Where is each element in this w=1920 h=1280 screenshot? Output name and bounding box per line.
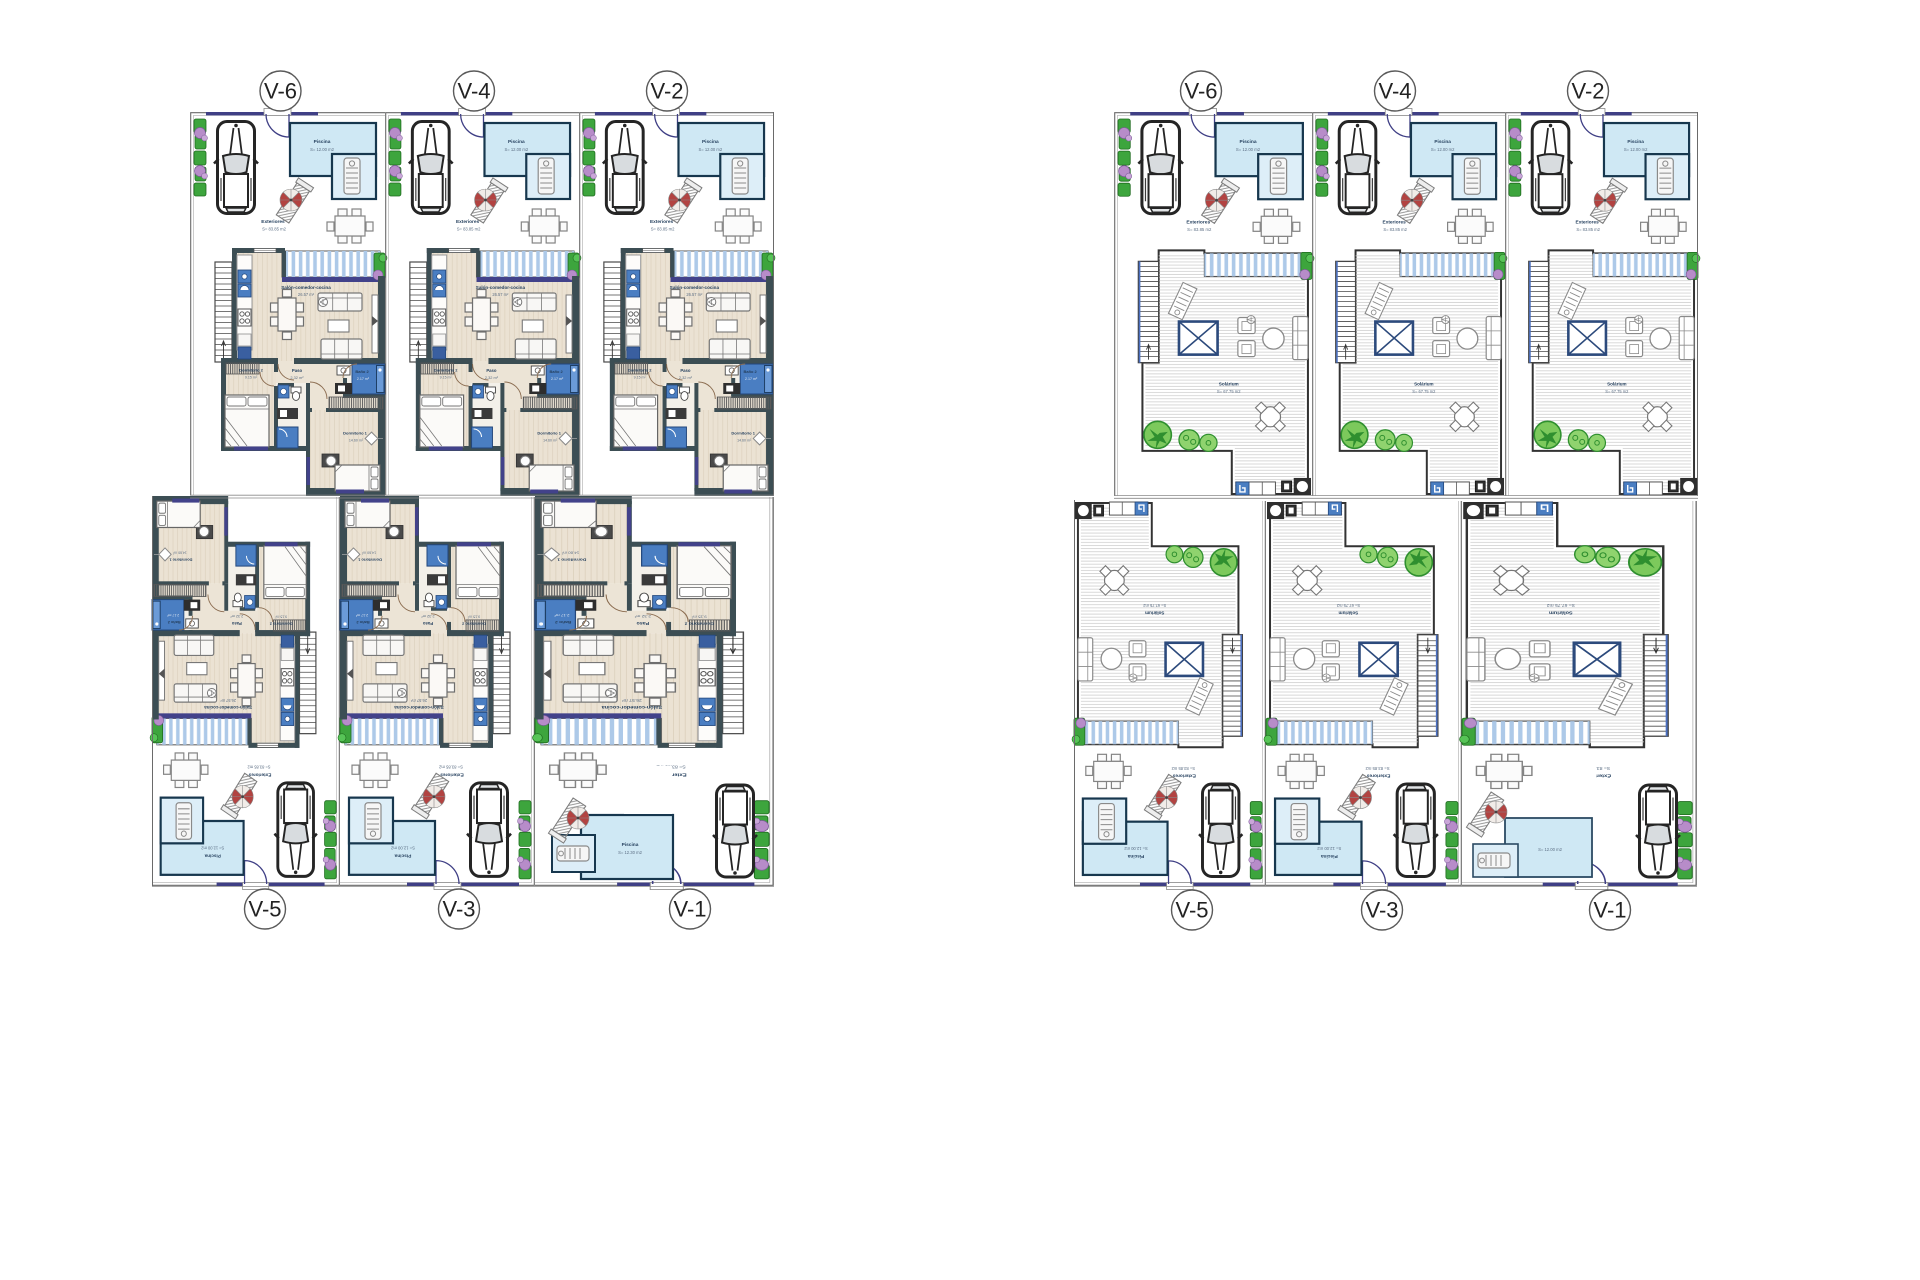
svg-text:V-4: V-4 (1378, 79, 1411, 104)
svg-text:V-6: V-6 (1184, 79, 1217, 104)
svg-text:Piscina: Piscina (622, 842, 639, 848)
svg-text:S= 12.30 m2: S= 12.30 m2 (618, 850, 643, 855)
svg-text:V-3: V-3 (1365, 898, 1398, 923)
svg-text:S= 12.00 m2: S= 12.00 m2 (1538, 847, 1563, 852)
svg-text:V-3: V-3 (442, 897, 475, 922)
svg-text:V-2: V-2 (650, 79, 683, 104)
svg-text:V-1: V-1 (1593, 898, 1626, 923)
svg-text:V-4: V-4 (457, 79, 490, 104)
svg-text:V-6: V-6 (264, 79, 297, 104)
svg-text:V-5: V-5 (1175, 898, 1208, 923)
svg-text:V-2: V-2 (1571, 79, 1604, 104)
svg-text:V-1: V-1 (673, 897, 706, 922)
svg-text:V-5: V-5 (248, 897, 281, 922)
